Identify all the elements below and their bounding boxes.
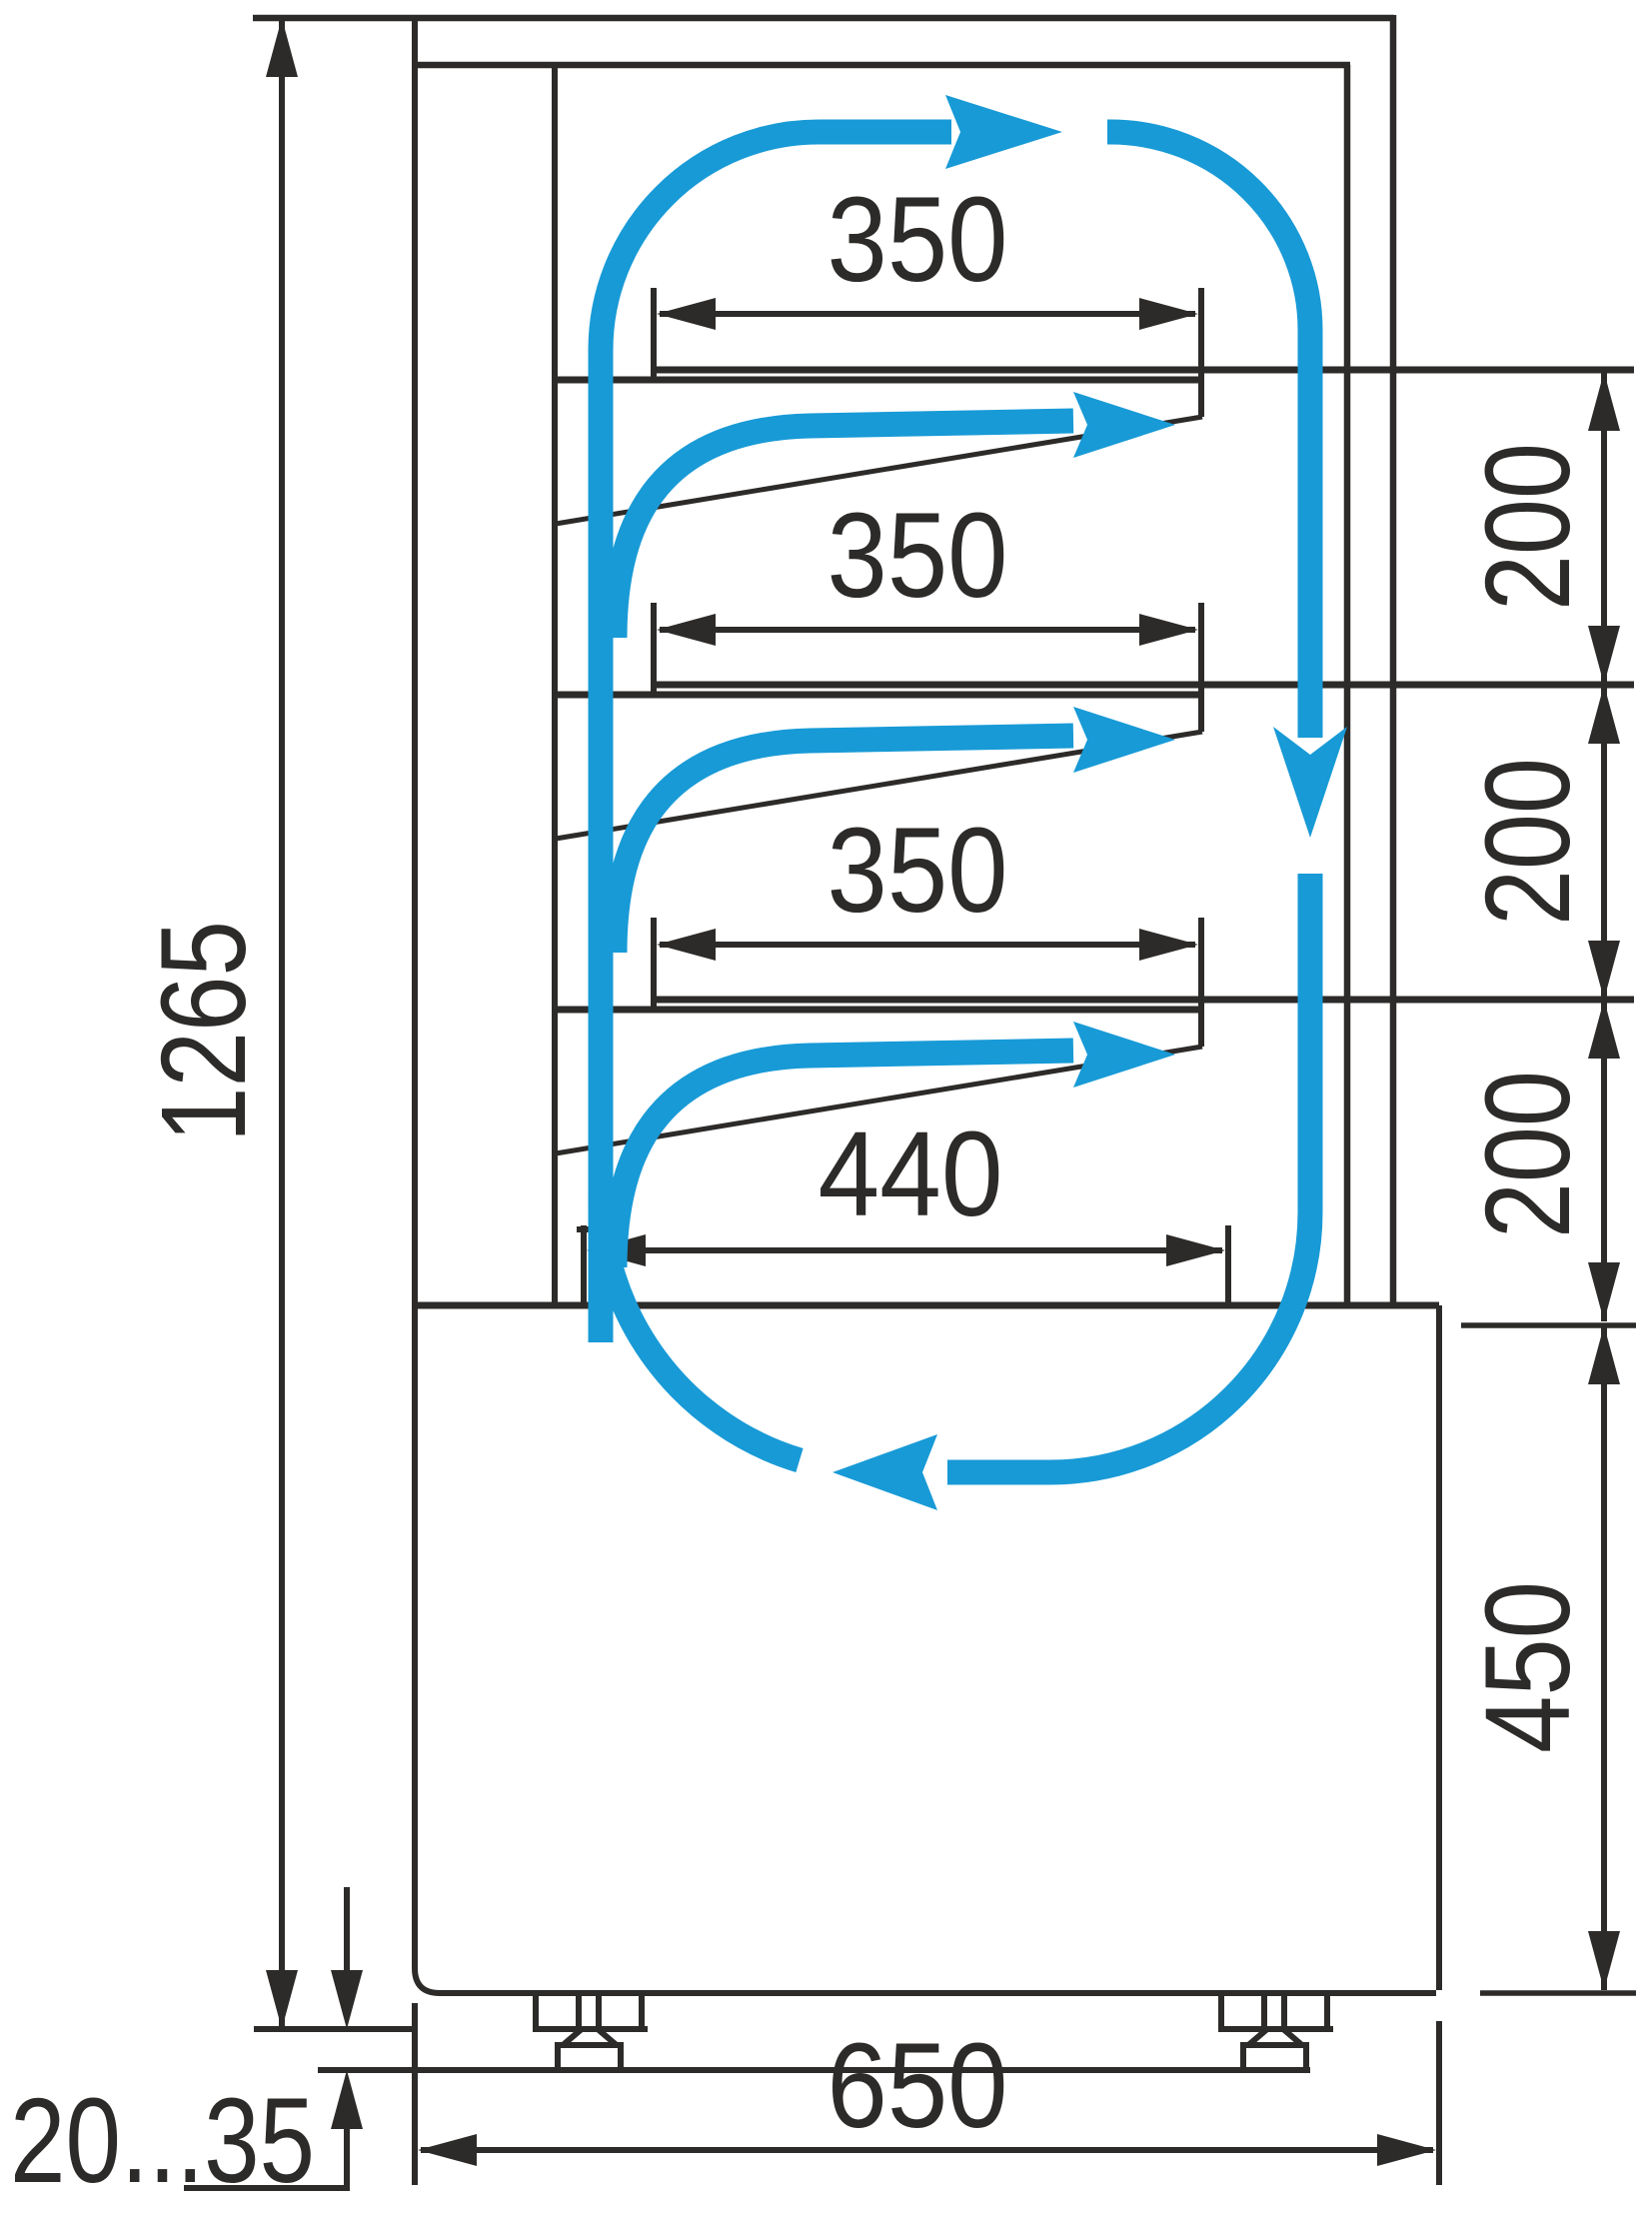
svg-text:200: 200 [1459, 443, 1595, 611]
svg-text:450: 450 [1459, 1581, 1595, 1753]
svg-text:350: 350 [827, 171, 1008, 307]
svg-text:440: 440 [819, 1106, 1003, 1241]
svg-text:1265: 1265 [135, 921, 271, 1142]
svg-text:200: 200 [1459, 1071, 1595, 1238]
svg-text:20...35: 20...35 [10, 2072, 315, 2208]
svg-text:350: 350 [827, 487, 1008, 623]
svg-text:650: 650 [827, 2017, 1008, 2153]
svg-text:350: 350 [827, 802, 1008, 938]
svg-text:200: 200 [1459, 758, 1595, 926]
